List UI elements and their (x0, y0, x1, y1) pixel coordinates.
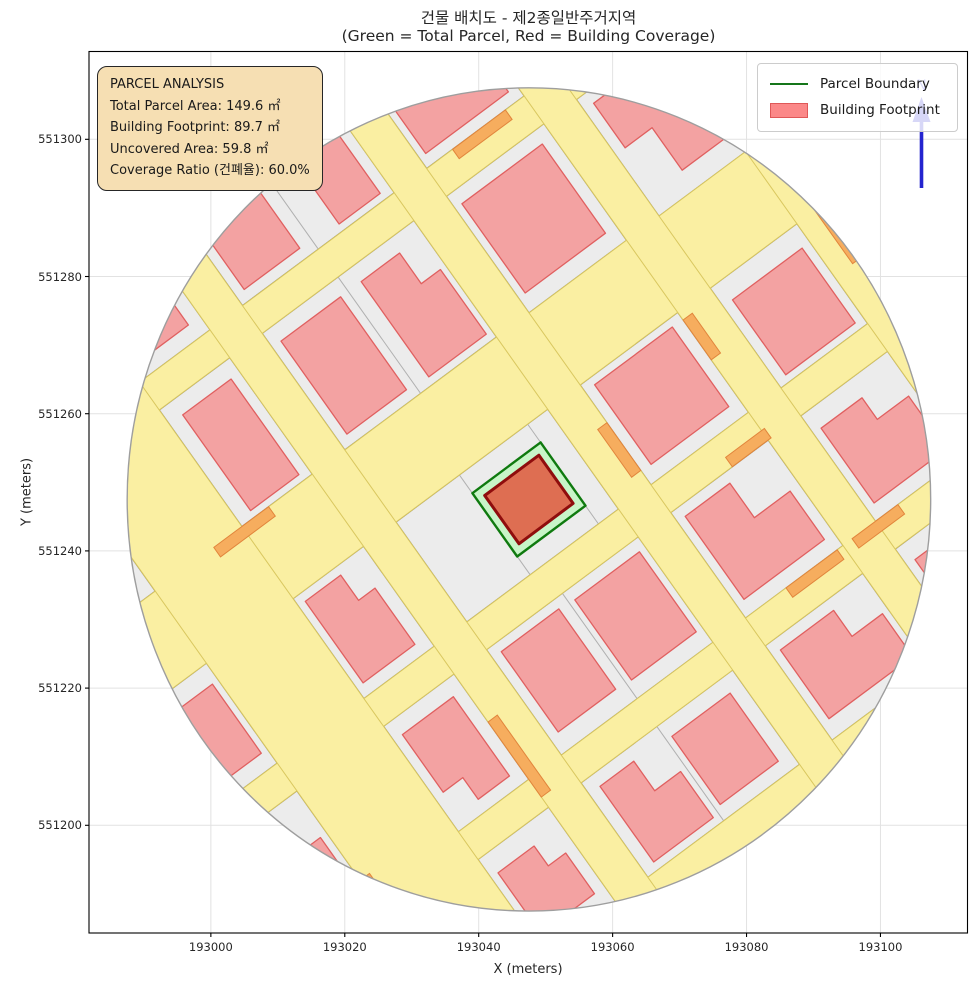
y-tick-label: 551200 (38, 818, 82, 832)
building-footprint-patch-swatch (768, 103, 810, 118)
building-footprint (685, 873, 759, 939)
legend-item-parcel-boundary: Parcel Boundary (768, 71, 947, 97)
y-axis-label: Y (meters) (20, 458, 35, 526)
building-footprint (68, 229, 188, 352)
y-tick-label: 551240 (38, 544, 82, 558)
legend-label: Building Footprint (820, 102, 940, 118)
legend-label: Parcel Boundary (820, 76, 930, 92)
x-tick-label: 193000 (189, 940, 233, 954)
building-footprint-area: Building Footprint: 89.7 ㎡ (110, 117, 310, 139)
parcel-analysis-box: PARCEL ANALYSIS Total Parcel Area: 149.6… (97, 66, 323, 191)
legend-item-building-footprint: Building Footprint (768, 97, 947, 123)
building-footprint (934, 312, 976, 418)
figure: 건물 배치도 - 제2종일반주거지역 (Green = Total Parcel… (0, 0, 976, 990)
y-tick-label: 551260 (38, 407, 82, 421)
x-tick-label: 193020 (323, 940, 367, 954)
building-footprint (590, 952, 655, 990)
uncovered-area: Uncovered Area: 59.8 ㎡ (110, 139, 310, 161)
block (470, 0, 643, 72)
parcel-boundary-line-swatch (768, 83, 810, 85)
parcel-division-line (743, 849, 782, 904)
y-tick-label: 551220 (38, 681, 82, 695)
y-tick-label: 551300 (38, 132, 82, 146)
y-tick-label: 551280 (38, 270, 82, 284)
x-tick-label: 193060 (591, 940, 635, 954)
x-tick-label: 193040 (457, 940, 501, 954)
building-footprint (868, 713, 972, 807)
x-tick-label: 193100 (859, 940, 903, 954)
road-accent (897, 684, 952, 729)
x-tick-label: 193080 (725, 940, 769, 954)
coverage-ratio: Coverage Ratio (건폐율): 60.0% (110, 160, 310, 182)
parcel-analysis-title: PARCEL ANALYSIS (110, 74, 310, 96)
x-axis-label: X (meters) (493, 962, 562, 977)
block (299, 924, 458, 990)
block (565, 929, 675, 990)
block (915, 295, 976, 437)
legend: Parcel Boundary Building Footprint (757, 63, 958, 132)
building-footprint (481, 0, 622, 55)
total-parcel-area: Total Parcel Area: 149.6 ㎡ (110, 96, 310, 118)
